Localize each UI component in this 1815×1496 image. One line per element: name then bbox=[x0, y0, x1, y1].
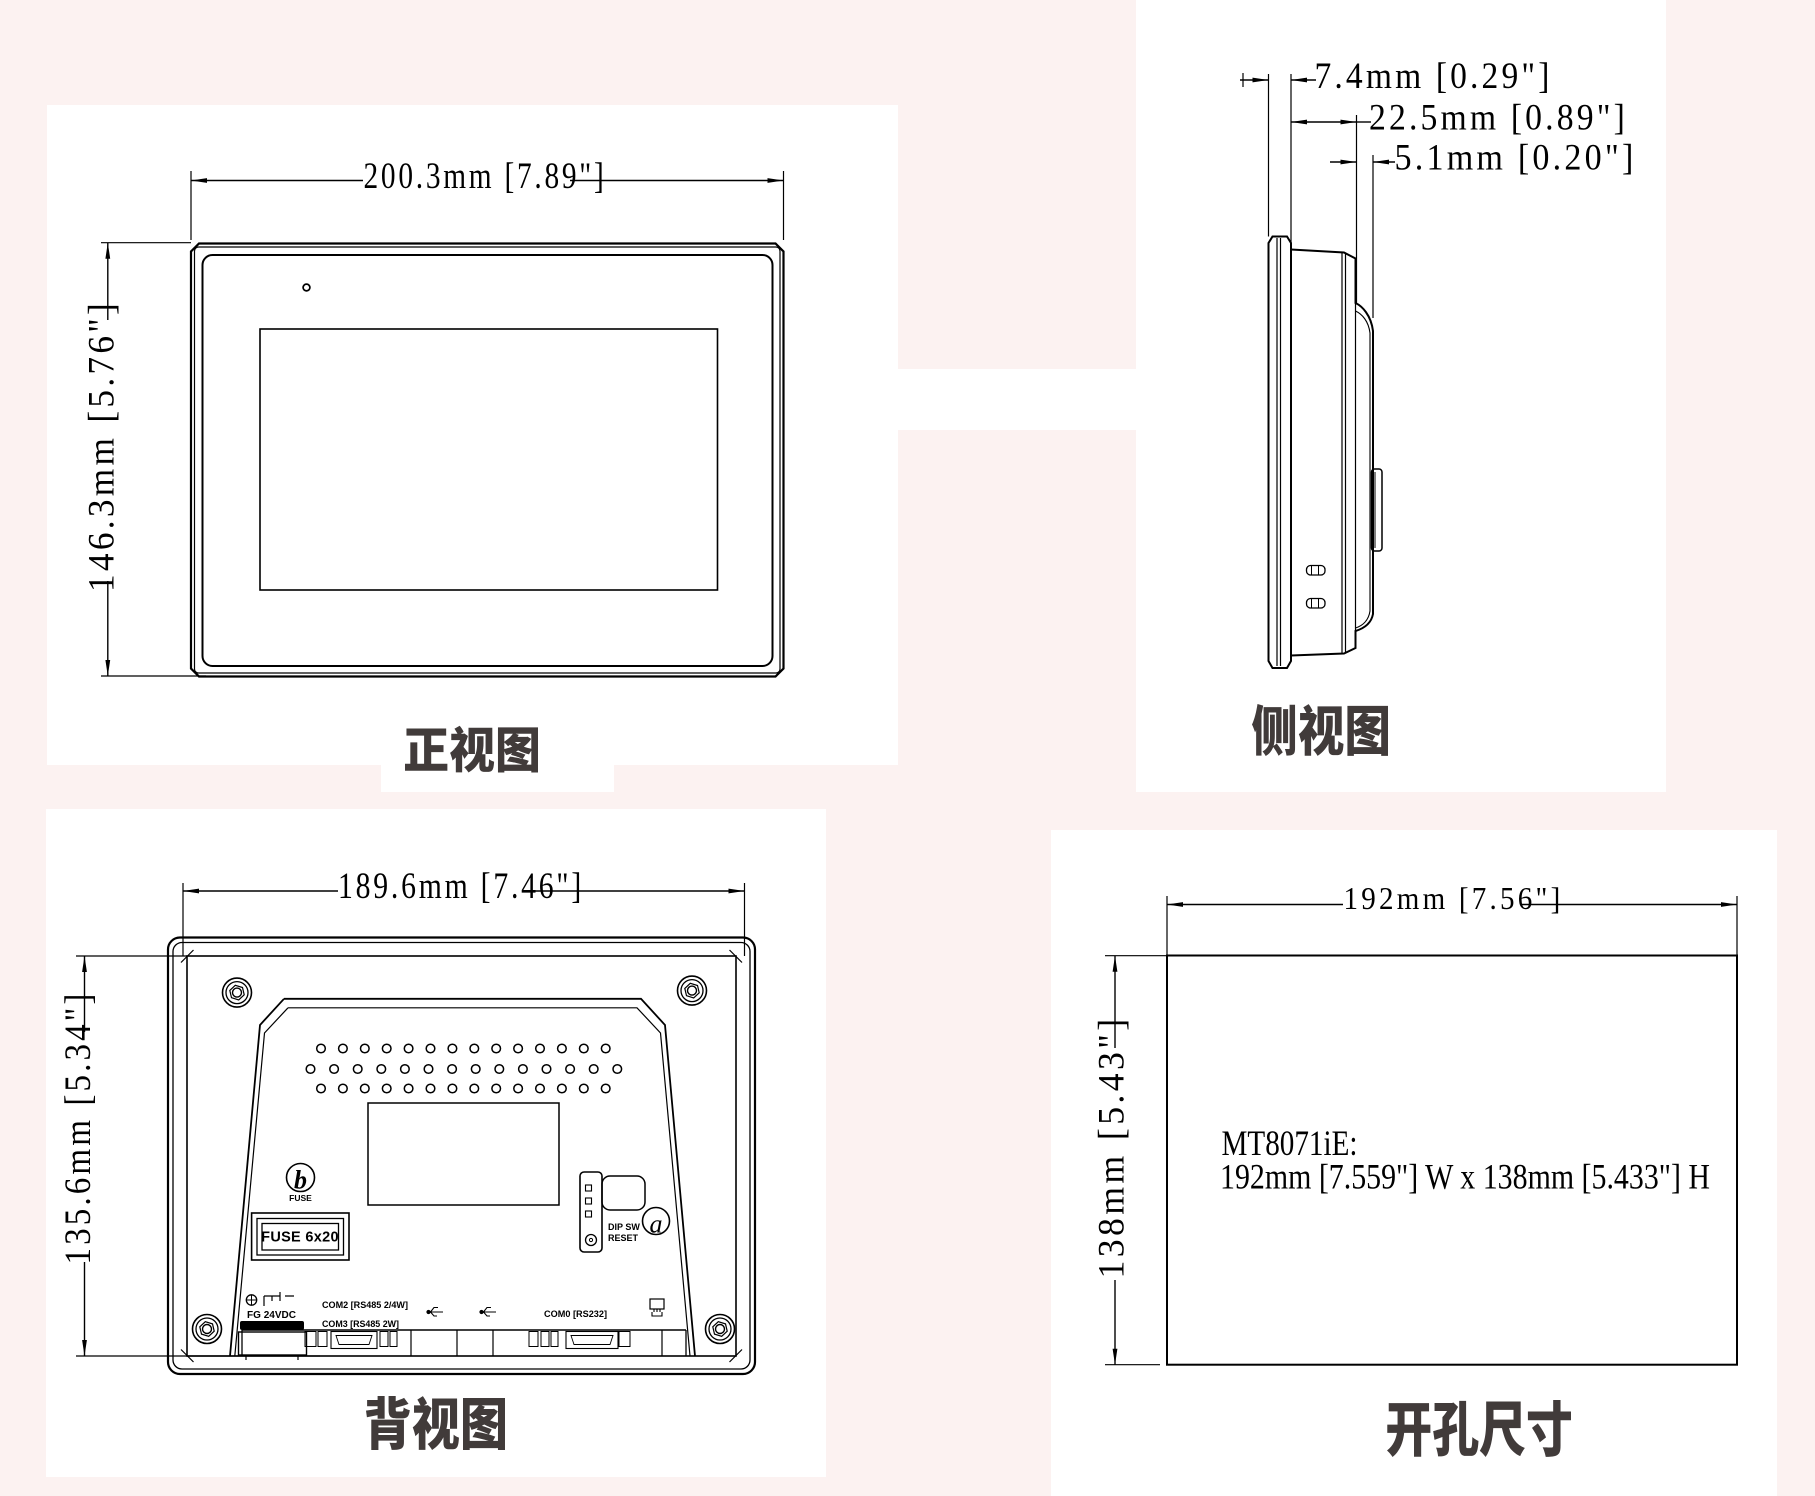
svg-text:22.5mm [0.89"]: 22.5mm [0.89"] bbox=[1369, 98, 1628, 139]
svg-text:200.3mm [7.89"]: 200.3mm [7.89"] bbox=[364, 156, 607, 197]
svg-text:135.6mm [5.34"]: 135.6mm [5.34"] bbox=[58, 991, 99, 1265]
svg-text:FUSE 6x20: FUSE 6x20 bbox=[261, 1230, 339, 1246]
svg-text:192mm [7.559"] W x 138mm [5.43: 192mm [7.559"] W x 138mm [5.433"] H bbox=[1220, 1157, 1710, 1197]
svg-text:b: b bbox=[294, 1166, 307, 1195]
svg-text:138mm [5.43"]: 138mm [5.43"] bbox=[1092, 1016, 1133, 1279]
svg-text:COM2 [RS485 2/4W]: COM2 [RS485 2/4W] bbox=[322, 1300, 408, 1311]
svg-text:189.6mm [7.46"]: 189.6mm [7.46"] bbox=[338, 866, 584, 907]
svg-text:FG 24VDC: FG 24VDC bbox=[247, 1309, 296, 1321]
svg-text:5.1mm [0.20"]: 5.1mm [0.20"] bbox=[1395, 138, 1637, 179]
svg-text:DIP SW: DIP SW bbox=[608, 1222, 640, 1232]
svg-text:COM0 [RS232]: COM0 [RS232] bbox=[544, 1309, 607, 1320]
svg-text:7.4mm [0.29"]: 7.4mm [0.29"] bbox=[1315, 56, 1553, 97]
svg-text:146.3mm [5.76"]: 146.3mm [5.76"] bbox=[82, 300, 123, 592]
svg-text:RESET: RESET bbox=[608, 1233, 639, 1243]
svg-text:192mm [7.56"]: 192mm [7.56"] bbox=[1344, 881, 1564, 916]
svg-text:FUSE: FUSE bbox=[289, 1193, 312, 1203]
svg-text:a: a bbox=[650, 1210, 663, 1239]
svg-text:COM3 [RS485 2W]: COM3 [RS485 2W] bbox=[322, 1319, 399, 1330]
